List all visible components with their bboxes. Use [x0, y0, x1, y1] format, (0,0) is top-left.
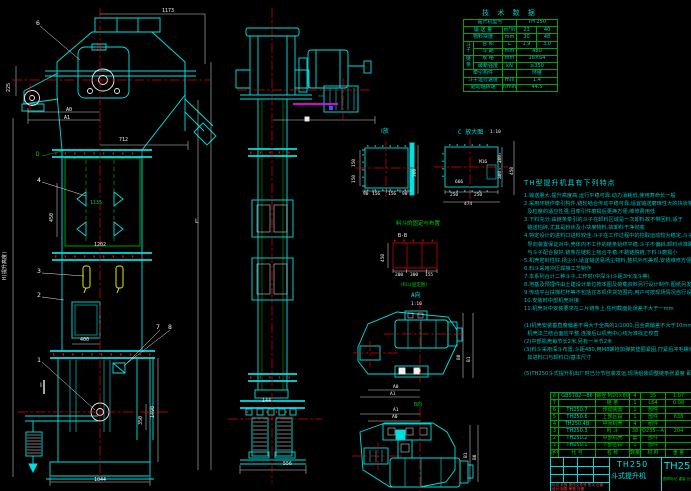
bom-cell: GB5782—86 — [559, 393, 596, 400]
bom-cell: TH250.7 — [559, 407, 596, 414]
dim-label: B0 — [458, 355, 463, 360]
bom-cell: 4 — [630, 393, 641, 400]
title-block-gridline — [563, 458, 564, 482]
tech-table-cell: 40 — [537, 27, 558, 34]
bom-cell: L64 — [641, 400, 666, 407]
bom-cell: 38 — [630, 428, 641, 435]
tech-table-cell: mm — [503, 34, 517, 41]
note-line: 9.传动平台扶梯栏杆等不包括在本机供货范围内,用户可按现场情况自行设计制作,要求… — [524, 289, 691, 297]
bom-cell: 传动装置 — [596, 407, 630, 414]
bom-cell: 0.08 — [666, 400, 691, 407]
dim-label: A0 — [66, 108, 72, 113]
tech-table-cell: TH 250 — [517, 20, 558, 27]
bom-cell: 螺栓 M20×80 — [596, 393, 630, 400]
bom-cell: 204 — [666, 428, 691, 435]
dim-label: 4 — [37, 177, 41, 184]
dim-label: B1 — [465, 453, 470, 458]
dim-label: 300 — [410, 274, 418, 279]
dim-label: M16 — [479, 161, 487, 166]
dim-label: L — [195, 219, 199, 225]
dim-label: 90 — [363, 193, 368, 198]
note-line: 7.本系列合计二种斗子,工作时(中深斗)斗距3H(浅斗等). — [524, 273, 691, 281]
dim-label: B-B — [398, 234, 407, 239]
tech-table-cell: 1.4 — [517, 77, 558, 84]
dim-label: 150 — [353, 159, 358, 167]
tech-table-cell: mm — [503, 55, 517, 62]
model-number: TH250 — [617, 461, 648, 469]
tech-table-cell: L — [503, 41, 517, 48]
dim-label: H(提升高度) — [3, 251, 8, 280]
dim-label: 360 — [414, 169, 419, 177]
dim-label: 1:10 — [490, 131, 501, 136]
dim-label: A1 — [390, 393, 395, 398]
title-block-gridline — [577, 458, 578, 482]
bom-cell: 5 — [551, 414, 559, 421]
tech-table-cell: 破断强度 — [474, 63, 503, 70]
dim-label: 556 — [283, 462, 292, 467]
dim-label: Ⅰ放 — [381, 129, 389, 135]
note-line — [524, 362, 691, 370]
dim-label: 666 — [455, 181, 463, 186]
bom-cell: 35 — [641, 393, 666, 400]
bom-cell: 1 — [630, 442, 641, 449]
stamp-row-labels: 图样标记 重量 比例 — [663, 478, 691, 482]
bom-cell: 部件 — [641, 442, 666, 449]
main-outline-cyan — [22, 18, 500, 487]
dim-label: 料斗的固定与布置 — [396, 222, 440, 228]
bom-cell — [559, 400, 596, 407]
dimension-lines — [13, 14, 514, 486]
tech-table-cell: 斗子运行速度 — [464, 77, 503, 84]
dim-label: 90 — [402, 193, 407, 198]
dim-label: A1 — [393, 409, 398, 414]
bom-cell: 4 — [551, 421, 559, 428]
bom-cell: 1 — [630, 400, 641, 407]
centerlines-red — [12, 8, 508, 491]
note-line — [524, 313, 691, 321]
dim-label: 250 — [450, 194, 458, 199]
note-line: 11.机壳对中安装要求在二片链条上,任何截面处误差不大于一mm — [524, 305, 691, 313]
dim-label: 3 — [37, 268, 41, 275]
note-line: 8.地基及预埋件由土建设计单位按本图及荷载资料另行设计制作,图纸另发 — [524, 281, 691, 289]
title-block-divider — [661, 458, 662, 491]
parts-list-table: 8GB5782—86螺栓 M20×804351.077链 条1L640.086T… — [550, 392, 691, 458]
bom-cell: 7 — [551, 400, 559, 407]
dim-label: 225 — [7, 83, 12, 92]
technical-data-title: 技 术 数 据 — [463, 8, 557, 18]
tech-table-cell: 23 — [517, 27, 537, 34]
dim-label: B1 — [468, 357, 473, 362]
tech-table-cell: kN — [503, 63, 517, 70]
note-line: 3.下料充分:由链条牵引的斗子在卸料区域是一次卸料故不带回料,适于 — [524, 216, 691, 224]
dim-label: 450 — [511, 167, 516, 175]
bom-cell: 料 斗 — [596, 428, 630, 435]
dim-label: 8 — [168, 324, 172, 331]
tech-table-cell: 18×64 — [517, 55, 558, 62]
tech-table-cell: 牵引构件 — [464, 70, 503, 77]
note-line: 5.机壳密封性好,扬尘小,适宜输送易扬尘物料,整机外形美观,安装维修方便,运转费… — [524, 257, 691, 265]
bom-cell: 中间机壳 — [596, 421, 630, 428]
title-block-gridline — [551, 474, 609, 475]
note-line: 及粒度的适应性强,且牵引件磨损后更换方便,维修费用低 — [524, 208, 691, 216]
tech-table-cell: 480 — [517, 48, 558, 55]
tech-table-cell: r/min — [503, 84, 517, 91]
blue-dot — [329, 106, 333, 110]
tech-table-cell: 3.0 — [537, 41, 558, 48]
dim-label: 1490 — [151, 406, 156, 418]
dim-label: 156 — [372, 193, 380, 198]
bom-cell: TH250.2 — [559, 435, 596, 442]
tech-table-cell: 规 格 — [474, 55, 503, 62]
tech-table-cell: 44.5 — [517, 84, 558, 91]
dim-label: A0 — [392, 416, 397, 421]
note-line: (2)中部机壳每节长2米,另有一半节2米 — [524, 338, 691, 346]
note-line: 2.采用环链作牵引构件,链轮啮合传动平稳可靠,适宜输送磨琢性大的块状物料,对物料… — [524, 200, 691, 208]
bom-cell: 组件 — [641, 421, 666, 428]
note-line: 1.输送量大,提升高度高,运行平稳可靠,动力消耗低,使用寿命长一般 — [524, 192, 691, 200]
bom-cell — [666, 442, 691, 449]
title-block: 标记 处数 更改文件号 签字 日期 设计 制图 审核 日期 TH250 斗式提升… — [550, 457, 691, 491]
dim-label: A0 — [393, 386, 398, 391]
tech-table-cell: 环链 — [517, 70, 558, 77]
dim-label: 1202 — [94, 243, 106, 248]
title-block-divider — [609, 458, 610, 491]
technical-data-table: 技 术 数 据 提升机型号TH 250输 送 量m³/h2340物料块度mm30… — [463, 8, 557, 92]
tech-table-cell: 斗 距 — [474, 48, 503, 55]
bom-cell: 部件 — [641, 435, 666, 442]
bom-cell — [666, 421, 691, 428]
dim-label: 1044 — [94, 478, 106, 483]
dim-label: 712 — [119, 138, 128, 143]
dim-label: Ⅰ — [40, 382, 42, 389]
bom-cell: TH250.1 — [559, 442, 596, 449]
bom-cell: 3 — [551, 428, 559, 435]
bom-cell: 1 — [551, 442, 559, 449]
technical-data-grid: 提升机型号TH 250输 送 量m³/h2340物料块度mm3048斗子容 积L… — [463, 19, 558, 92]
note-line: 4.特定设计的进料口进料较佳,斗子在工作过程中的挖取运动较为稳定,斗子上,下行均… — [524, 232, 691, 240]
bom-cell: TH250.6 — [559, 414, 596, 421]
bom-cell: TH250.4B — [559, 421, 596, 428]
white-details — [25, 69, 428, 453]
bom-cell: TH250.3 — [559, 428, 596, 435]
note-line: 10.安装时中部机壳对接 — [524, 297, 691, 305]
feature-notes-title: TH型提升机具有下列特点 — [524, 178, 691, 188]
bom-cell: 6 — [551, 407, 559, 414]
bom-cell — [666, 435, 691, 442]
tech-table-cell: m³/h — [503, 27, 517, 34]
tech-table-cell: 48 — [537, 34, 558, 41]
bom-cell: 1.07 — [666, 393, 691, 400]
note-line: 其进料口与卸料口/基本尺寸 — [524, 354, 691, 362]
feature-notes: TH型提升机具有下列特点 1.输送量大,提升高度高,运行平稳可靠,动力消耗低,使… — [524, 178, 691, 378]
note-line: 与斗子配合良好,链条在链轮上啮合平稳,不跳链脱链,下料斗磨损小 — [524, 249, 691, 257]
note-line: 导向装置保证对中,壳体内不工作的链条始终平稳,斗子不偏斜,卸料点准确度高,工作链… — [524, 241, 691, 249]
bom-cell: 638 — [666, 414, 691, 421]
dim-label: 400 — [80, 338, 89, 343]
tech-table-cell: 提升机型号 — [464, 20, 517, 27]
bom-cell: 套 — [630, 435, 641, 442]
dim-label: 150 — [353, 175, 358, 183]
note-line: 6.料斗采用冲压焊接工艺制作 — [524, 265, 691, 273]
dim-label: 7 — [156, 324, 160, 331]
dim-label: 6 — [36, 20, 40, 27]
tech-table-cell: 驱动轴转速 — [464, 84, 503, 91]
title-block-gridline — [551, 466, 609, 467]
dim-label: C 放大图 — [458, 130, 483, 136]
tech-table-cell — [503, 70, 517, 77]
dim-label: 1135 — [90, 201, 102, 206]
bom-cell: Q235—A — [641, 428, 666, 435]
dim-label: 450 — [50, 213, 55, 222]
bom-cell: 2 — [551, 435, 559, 442]
bom-cell: 1 — [630, 414, 641, 421]
note-line: 输送怕碎,尤其是粉状及小块度物料,故卸料干净彻底 — [524, 224, 691, 232]
tech-table-cell: 斗子 — [464, 41, 474, 55]
cad-drawing-canvas: 技 术 数 据 提升机型号TH 250输 送 量m³/h2340物料块度mm30… — [0, 0, 691, 491]
tech-table-cell: mm — [503, 48, 517, 55]
tech-table-cell: 物料块度 — [464, 34, 503, 41]
note-line: (1)机壳安装垂直度偏差不得大于全高的1/1000,且全高偏差不大于10mm, — [524, 322, 691, 330]
title-block-gridline — [593, 458, 594, 482]
bom-cell: 8 — [551, 393, 559, 400]
dim-label: 450 — [382, 254, 387, 262]
tech-table-cell: 容 积 — [474, 41, 503, 48]
dim-label: B0 — [474, 455, 479, 460]
dim-label: 1:10 — [411, 303, 422, 308]
note-line: (3)料斗采用深斗布置,斗距480,用M8螺栓加弹簧垫圈紧固,拧紧后冲毛螺纹2~… — [524, 346, 691, 354]
bom-cell — [666, 407, 691, 414]
dim-label: 1173 — [162, 9, 174, 14]
dim-label: 474 — [464, 203, 472, 208]
bom-cell: 下部区段 — [596, 442, 630, 449]
dim-label: 144 — [262, 399, 271, 404]
tech-table-cell: 30 — [517, 34, 537, 41]
dim-label: 155 — [425, 274, 433, 279]
note-line: (5)TH250斗式提升机出厂时已分节包装发运,现场组装调整链条张紧度 即可. — [524, 370, 691, 378]
dim-label: B向 — [414, 403, 422, 408]
dim-label: 350 — [139, 416, 144, 425]
dim-label: (料斗固定图) — [400, 284, 428, 289]
parts-list-grid: 8GB5782—86螺栓 M20×804351.077链 条1L640.086T… — [550, 392, 691, 458]
casing-green-lines — [42, 99, 283, 390]
product-name: 斗式提升机 — [611, 473, 646, 480]
bom-cell: 部件 — [641, 414, 666, 421]
dim-label: 156 — [388, 193, 396, 198]
bom-cell: 链 条 — [596, 400, 630, 407]
dim-label: A1 — [64, 116, 70, 121]
dim-label: D — [36, 152, 40, 158]
bom-cell: 中部机壳 — [596, 435, 630, 442]
drawing-number: TH250 — [664, 462, 691, 472]
dim-label: 200 — [395, 274, 403, 279]
tech-table-cell: 输 送 量 — [464, 27, 503, 34]
bom-cell: 部件 — [641, 407, 666, 414]
dim-label: 2 — [37, 292, 41, 299]
bom-cell: 4 — [630, 421, 641, 428]
tech-table-cell: m/s — [503, 77, 517, 84]
tech-table-cell: 1.9 — [517, 41, 537, 48]
dim-label: 250 — [474, 194, 482, 199]
note-line: 机壳法兰结合面应平整,连接后以机壳中心线为准找正校直 — [524, 330, 691, 338]
tech-table-cell: ≥350 — [517, 63, 558, 70]
bom-cell: 上部区段 — [596, 414, 630, 421]
dim-label: 1 — [37, 357, 41, 364]
bom-cell: 1 — [630, 407, 641, 414]
tech-table-cell: 链条 — [464, 55, 474, 69]
bucket-yellow — [83, 266, 123, 293]
dim-label: A向 — [411, 293, 421, 299]
dim-label: 200 — [499, 155, 504, 163]
dim-label: 200 — [499, 171, 504, 179]
